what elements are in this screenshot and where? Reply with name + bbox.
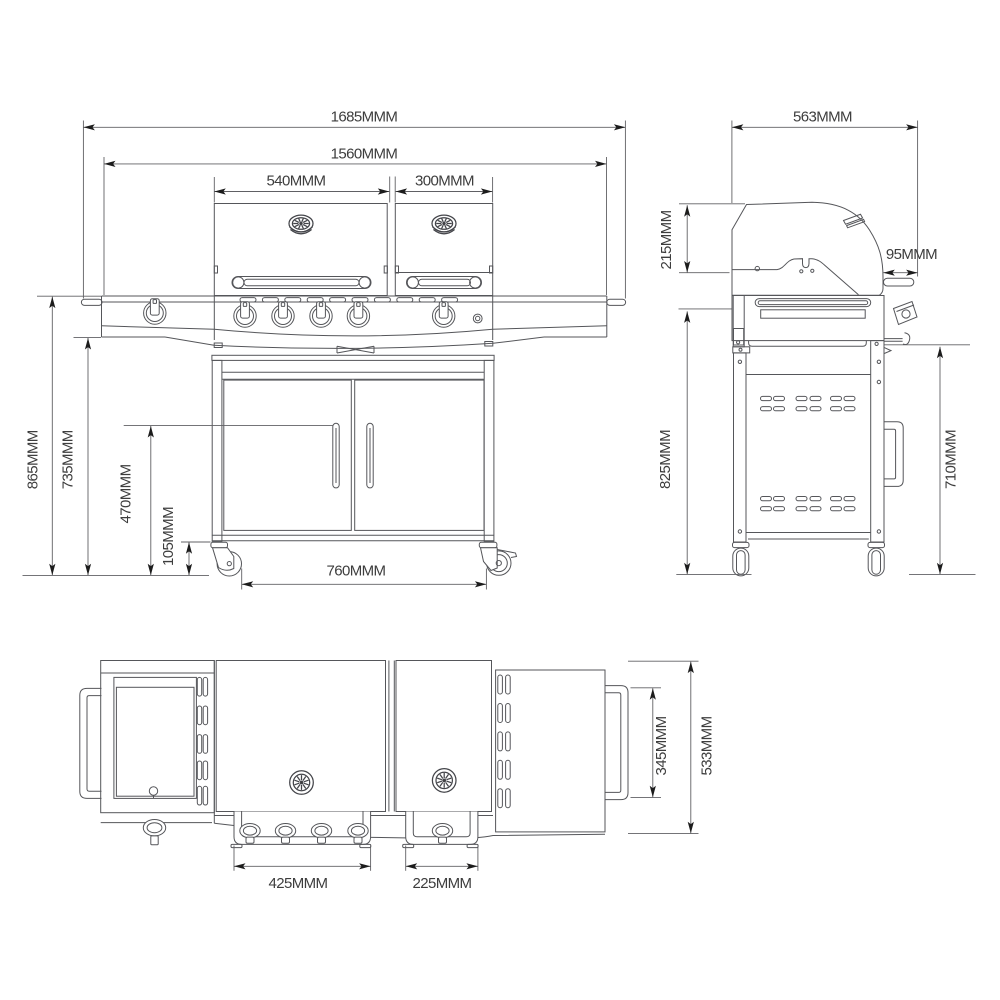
svg-text:865MMM: 865MMM [25, 430, 42, 489]
svg-text:470MMM: 470MMM [117, 464, 134, 523]
svg-text:735MMM: 735MMM [60, 430, 77, 489]
svg-text:95MMM: 95MMM [886, 246, 937, 263]
svg-text:225MMM: 225MMM [413, 875, 472, 892]
svg-text:825MMM: 825MMM [657, 430, 674, 489]
svg-text:760MMM: 760MMM [327, 563, 386, 580]
svg-text:540MMM: 540MMM [267, 173, 326, 190]
svg-text:1560MMM: 1560MMM [331, 146, 398, 163]
svg-text:1685MMM: 1685MMM [331, 109, 398, 126]
svg-text:215MMM: 215MMM [658, 210, 675, 269]
svg-text:710MMM: 710MMM [943, 430, 960, 489]
svg-text:300MMM: 300MMM [415, 173, 474, 190]
svg-text:425MMM: 425MMM [269, 875, 328, 892]
svg-text:533MMM: 533MMM [698, 716, 715, 775]
svg-text:105MMM: 105MMM [160, 507, 177, 566]
svg-text:563MMM: 563MMM [793, 109, 852, 126]
svg-text:345MMM: 345MMM [653, 716, 670, 775]
